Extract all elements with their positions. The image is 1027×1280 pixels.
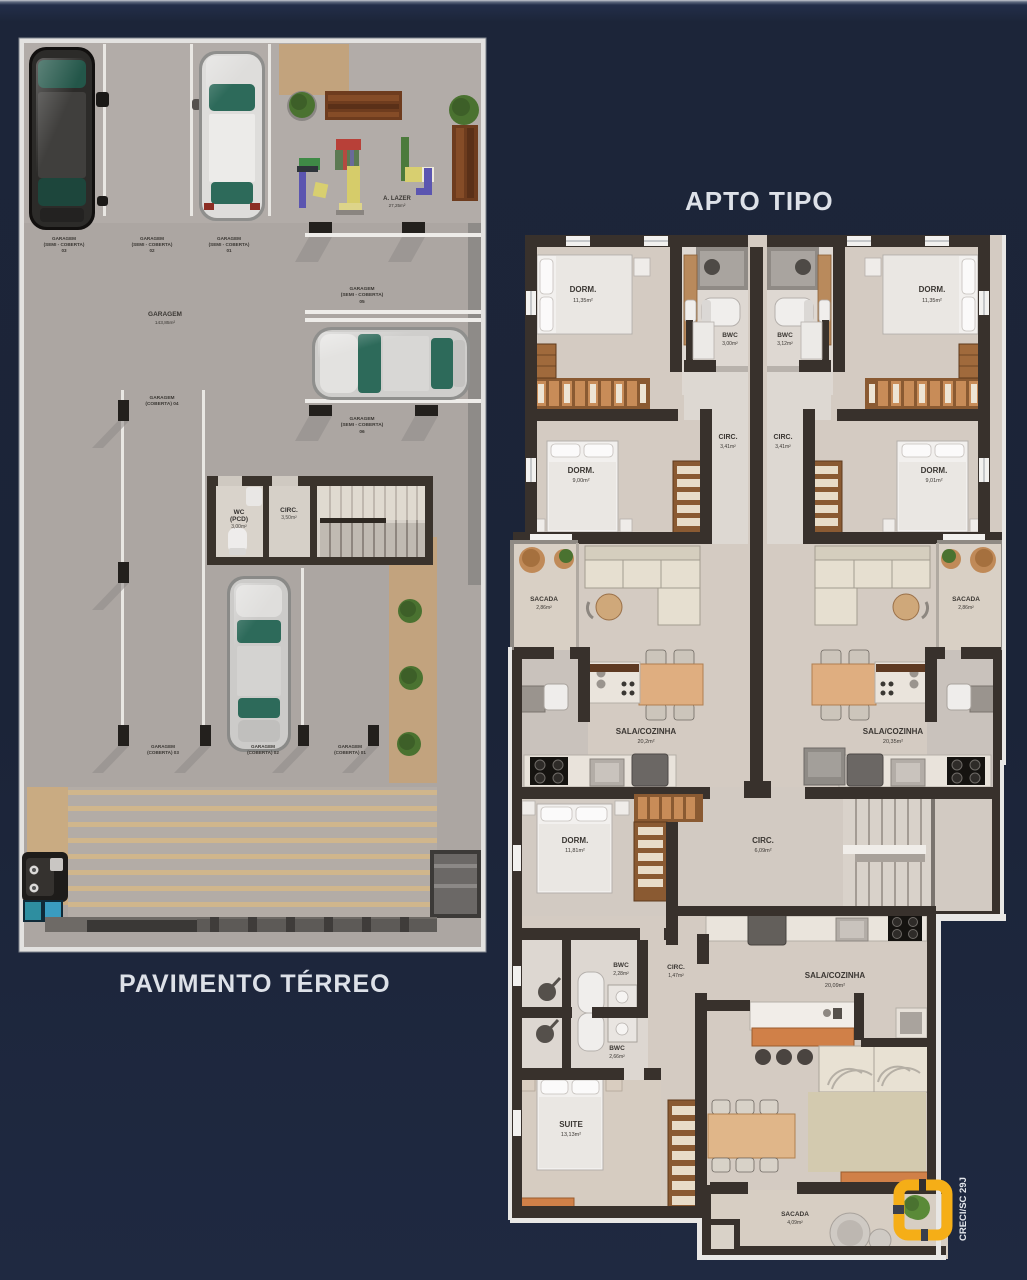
svg-text:GARAGEM: GARAGEM — [149, 395, 174, 401]
svg-text:11,35m²: 11,35m² — [922, 298, 942, 304]
svg-text:03: 03 — [61, 248, 67, 253]
svg-text:GARAGEM: GARAGEM — [338, 744, 362, 749]
svg-text:DORM.: DORM. — [921, 466, 948, 475]
svg-text:3,12m²: 3,12m² — [777, 341, 793, 347]
svg-text:05: 05 — [359, 299, 365, 305]
svg-text:GARAGEM: GARAGEM — [349, 416, 374, 422]
svg-text:SALA/COZINHA: SALA/COZINHA — [863, 727, 924, 736]
svg-text:20,2m²: 20,2m² — [637, 739, 654, 745]
svg-text:BWC: BWC — [613, 962, 629, 969]
svg-text:(SEMI - COBERTA): (SEMI - COBERTA) — [341, 292, 384, 298]
svg-text:143,85m²: 143,85m² — [155, 320, 176, 326]
svg-text:3,50m²: 3,50m² — [281, 515, 297, 521]
svg-text:GARAGEM: GARAGEM — [217, 236, 241, 241]
svg-text:13,13m²: 13,13m² — [561, 1132, 581, 1138]
svg-text:GARAGEM: GARAGEM — [52, 236, 76, 241]
svg-text:BWC: BWC — [722, 332, 738, 339]
svg-text:SACADA: SACADA — [530, 596, 558, 603]
svg-text:(SEMI - COBERTA): (SEMI - COBERTA) — [341, 422, 384, 428]
svg-text:CIRC.: CIRC. — [718, 434, 737, 441]
svg-text:DORM.: DORM. — [570, 285, 597, 294]
svg-text:DORM.: DORM. — [568, 466, 595, 475]
svg-text:(SEMI - COBERTA): (SEMI - COBERTA) — [132, 242, 173, 247]
svg-text:(SEMI - COBERTA): (SEMI - COBERTA) — [209, 242, 250, 247]
svg-text:6,09m²: 6,09m² — [754, 848, 771, 854]
svg-text:(COBERTA) 04: (COBERTA) 04 — [145, 401, 179, 407]
svg-text:CIRC.: CIRC. — [773, 434, 792, 441]
svg-text:01: 01 — [226, 248, 232, 253]
svg-text:3,41m²: 3,41m² — [720, 444, 736, 450]
svg-text:20,09m²: 20,09m² — [825, 983, 845, 989]
svg-text:(COBERTA) 02: (COBERTA) 02 — [247, 750, 279, 755]
svg-text:(COBERTA) 03: (COBERTA) 03 — [147, 750, 179, 755]
svg-text:GARAGEM: GARAGEM — [140, 236, 164, 241]
svg-text:3,41m²: 3,41m² — [775, 444, 791, 450]
svg-text:SALA/COZINHA: SALA/COZINHA — [616, 727, 677, 736]
svg-text:11,35m²: 11,35m² — [573, 298, 593, 304]
svg-text:A. LAZER: A. LAZER — [383, 196, 411, 202]
svg-text:SUITE: SUITE — [559, 1120, 583, 1129]
svg-text:2,86m²: 2,86m² — [536, 605, 552, 611]
svg-text:2,86m²: 2,86m² — [958, 605, 974, 611]
svg-text:11,81m²: 11,81m² — [565, 848, 585, 854]
svg-text:20,35m²: 20,35m² — [883, 739, 903, 745]
svg-text:GARAGEM: GARAGEM — [251, 744, 275, 749]
svg-text:2,28m²: 2,28m² — [613, 971, 629, 977]
svg-text:BWC: BWC — [777, 332, 793, 339]
svg-text:9,00m²: 9,00m² — [572, 478, 589, 484]
svg-text:02: 02 — [149, 248, 155, 253]
svg-text:WC: WC — [234, 509, 245, 516]
svg-text:GARAGEM: GARAGEM — [148, 311, 182, 318]
svg-text:CRECI/SC 29J: CRECI/SC 29J — [958, 1177, 969, 1241]
svg-text:DORM.: DORM. — [562, 836, 589, 845]
svg-text:DORM.: DORM. — [919, 285, 946, 294]
svg-text:1,47m²: 1,47m² — [668, 973, 684, 979]
svg-text:BWC: BWC — [609, 1045, 625, 1052]
svg-text:(SEMI - COBERTA): (SEMI - COBERTA) — [44, 242, 85, 247]
svg-text:SACADA: SACADA — [952, 596, 980, 603]
svg-text:4,09m²: 4,09m² — [787, 1220, 803, 1226]
svg-text:9,01m²: 9,01m² — [925, 478, 942, 484]
svg-text:27,25m²: 27,25m² — [389, 203, 406, 208]
svg-text:SACADA: SACADA — [781, 1211, 809, 1218]
svg-text:2,66m²: 2,66m² — [609, 1054, 625, 1060]
svg-text:SALA/COZINHA: SALA/COZINHA — [805, 971, 866, 980]
svg-text:GARAGEM: GARAGEM — [349, 286, 374, 292]
svg-text:3,00m²: 3,00m² — [722, 341, 738, 347]
svg-text:06: 06 — [359, 429, 365, 435]
svg-text:(PCD): (PCD) — [230, 516, 248, 523]
svg-text:CIRC.: CIRC. — [280, 507, 298, 514]
svg-text:3,00m²: 3,00m² — [231, 524, 247, 530]
svg-text:CIRC.: CIRC. — [752, 836, 774, 845]
svg-text:GARAGEM: GARAGEM — [151, 744, 175, 749]
svg-text:CIRC.: CIRC. — [667, 964, 685, 971]
svg-text:(COBERTA) 01: (COBERTA) 01 — [334, 750, 366, 755]
